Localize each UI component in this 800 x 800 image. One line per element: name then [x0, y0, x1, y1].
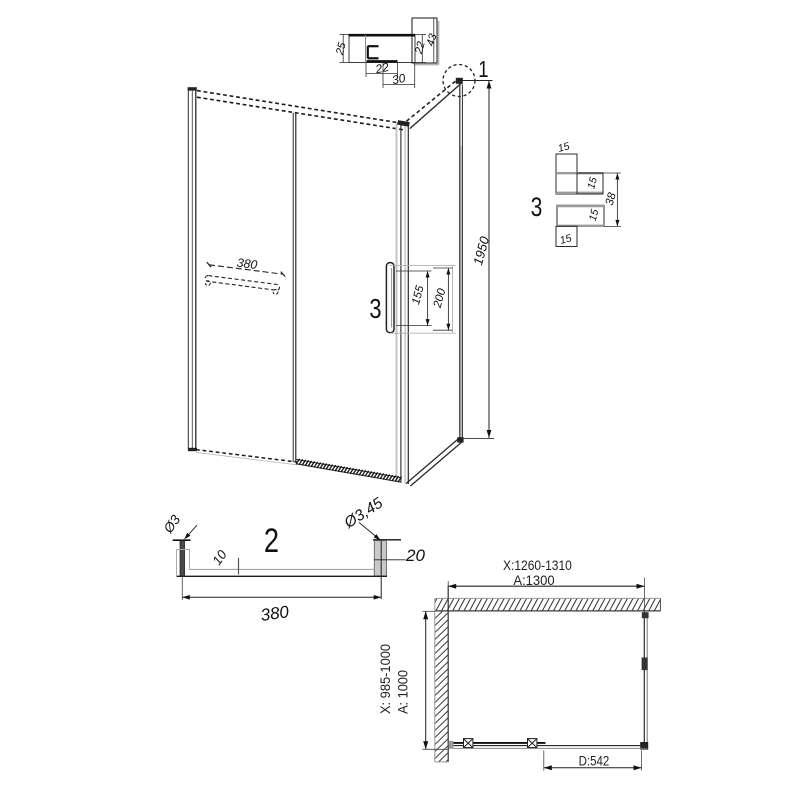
svg-text:A: 1000: A: 1000	[395, 670, 411, 714]
svg-text:D:542: D:542	[579, 752, 610, 768]
svg-text:3: 3	[531, 193, 543, 223]
svg-text:X:1260-1310: X:1260-1310	[503, 557, 572, 573]
svg-text:1: 1	[478, 57, 488, 82]
svg-text:3: 3	[369, 293, 381, 324]
svg-text:2: 2	[264, 521, 279, 560]
svg-text:X: 985-1000: X: 985-1000	[378, 644, 394, 714]
svg-text:380: 380	[236, 256, 258, 273]
svg-text:380: 380	[259, 602, 290, 625]
svg-text:20: 20	[405, 546, 425, 565]
